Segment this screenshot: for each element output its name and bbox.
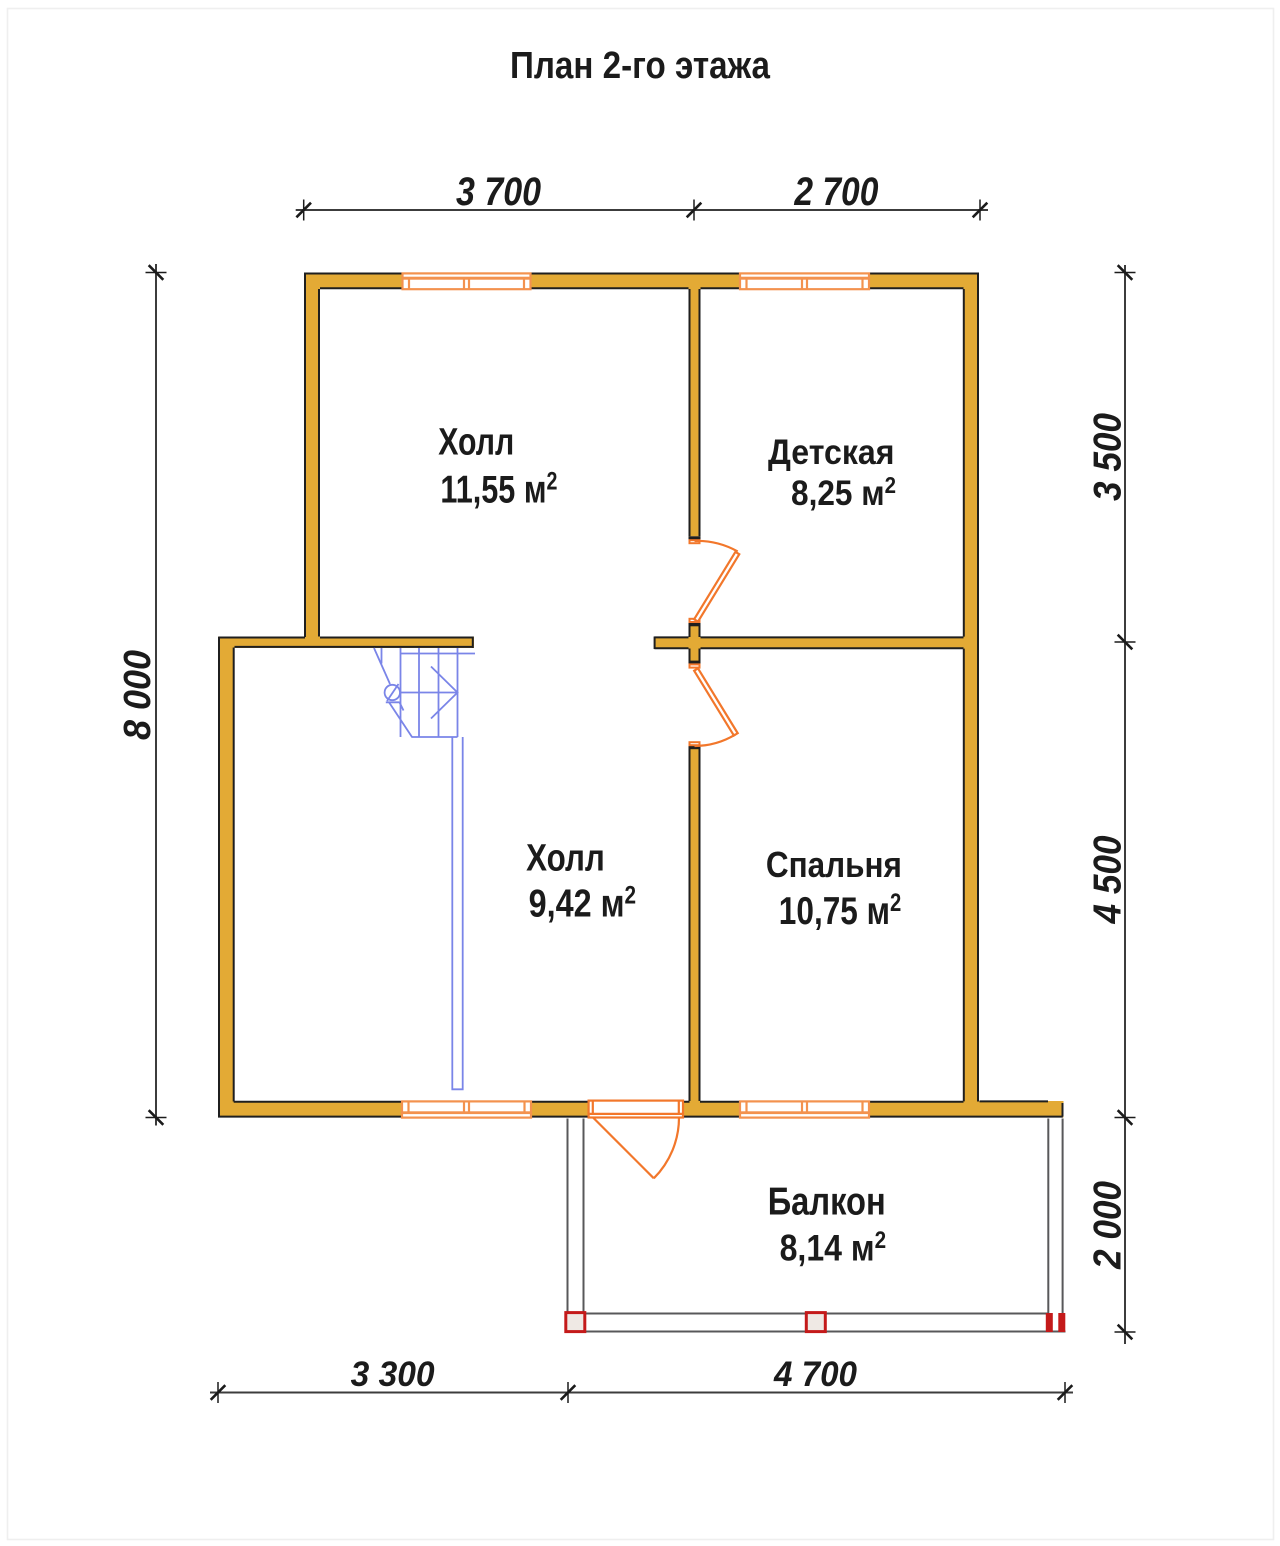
svg-text:3 500: 3 500 (1087, 412, 1130, 501)
svg-text:План 2-го этажа: План 2-го этажа (510, 45, 771, 87)
svg-text:Балкон: Балкон (768, 1181, 886, 1224)
svg-text:8,25 м2: 8,25 м2 (791, 472, 896, 513)
svg-text:10,75 м2: 10,75 м2 (779, 889, 902, 933)
svg-text:9,42 м2: 9,42 м2 (529, 882, 637, 926)
svg-text:11,55 м2: 11,55 м2 (440, 467, 557, 511)
svg-text:Детская: Детская (768, 432, 895, 472)
svg-text:2 700: 2 700 (794, 170, 879, 214)
svg-text:3 300: 3 300 (351, 1354, 435, 1394)
svg-text:Холл: Холл (438, 421, 514, 464)
svg-text:4 700: 4 700 (773, 1354, 857, 1394)
svg-text:Холл: Холл (526, 837, 605, 880)
svg-text:8,14 м2: 8,14 м2 (780, 1227, 887, 1269)
svg-text:3 700: 3 700 (456, 170, 541, 214)
svg-text:2 000: 2 000 (1087, 1180, 1130, 1269)
svg-text:Спальня: Спальня (766, 844, 902, 885)
svg-text:8 000: 8 000 (117, 650, 159, 740)
svg-text:4 500: 4 500 (1087, 835, 1130, 924)
